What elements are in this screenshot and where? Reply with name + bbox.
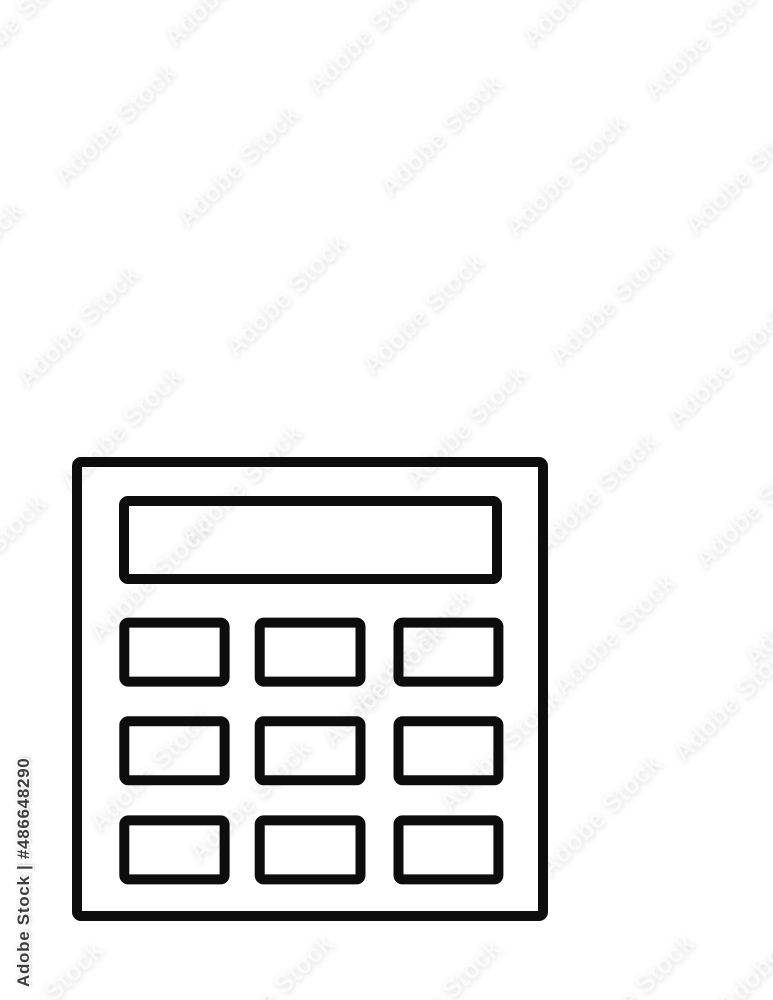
svg-text:Adobe Stock | #486648290: Adobe Stock | #486648290 [14, 758, 33, 987]
